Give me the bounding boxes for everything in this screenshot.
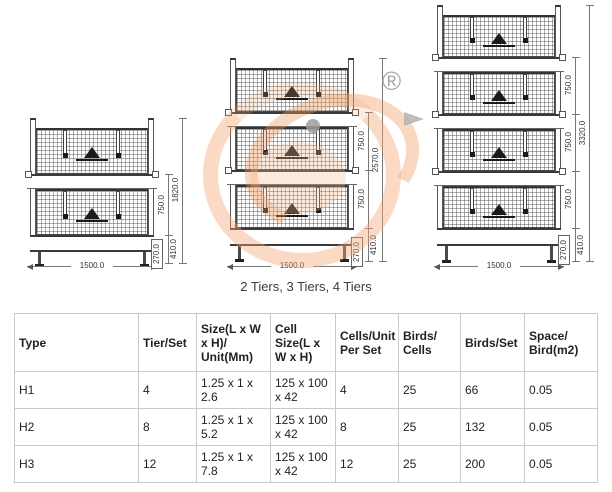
spec-cell: 12 <box>336 446 399 483</box>
spec-cell: 8 <box>139 409 197 446</box>
drinker-icon <box>84 208 100 219</box>
spec-cell: 125 x 100 x 42 <box>271 409 336 446</box>
cage-tier-mesh <box>443 72 555 114</box>
drinker-base <box>483 216 515 218</box>
spec-header-tier-set: Tier/Set <box>139 314 197 372</box>
tier-height-label: 750.0 <box>564 65 574 105</box>
total-height-label: 1820.0 <box>171 170 181 210</box>
foot-height-label: 270.0 <box>558 235 570 265</box>
spec-cell: 25 <box>399 372 461 409</box>
drinker-icon <box>491 147 507 158</box>
feeder-hanger-icon <box>523 131 527 153</box>
drinker-icon <box>284 145 300 156</box>
drinker-base <box>276 215 308 217</box>
table-row: H2 8 1.25 x 1 x 5.2 125 x 100 x 42 8 25 … <box>15 409 598 446</box>
feeder-hanger-icon <box>63 191 67 215</box>
spec-cell: 125 x 100 x 42 <box>271 372 336 409</box>
spec-cell: 8 <box>336 409 399 446</box>
drawings-caption: 2 Tiers, 3 Tiers, 4 Tiers <box>0 279 612 294</box>
manure-tray <box>434 114 564 129</box>
drinker-icon <box>491 33 507 44</box>
width-dimension-label: 1500.0 <box>71 261 113 271</box>
spec-cell: 1.25 x 1 x 5.2 <box>197 409 271 446</box>
feeder-hanger-icon <box>470 188 474 210</box>
spec-cell: 0.05 <box>525 372 598 409</box>
cage-tier-mesh <box>443 186 555 228</box>
drinker-base <box>276 157 308 159</box>
feeder-hanger-icon <box>263 70 267 93</box>
cage-leg <box>238 246 241 259</box>
spec-cell: 125 x 100 x 42 <box>271 446 336 483</box>
spec-header-cell-size: Cell Size(L x W x H) <box>271 314 336 372</box>
drinker-icon <box>491 204 507 215</box>
drinker-base <box>483 102 515 104</box>
spec-cell: 25 <box>399 446 461 483</box>
total-dimension-line <box>589 5 590 262</box>
base-height-label: 410.0 <box>576 225 586 265</box>
feeder-hanger-icon <box>263 187 267 209</box>
tier-height-label: 750.0 <box>564 179 574 219</box>
three-tier-cage-drawing: 1500.0 750.0 750.0 410.0 270.0 2570.0 <box>230 58 390 270</box>
feeder-hanger-icon <box>116 130 120 154</box>
drinker-icon <box>284 203 300 214</box>
total-height-label: 2570.0 <box>371 140 381 180</box>
feeder-hanger-icon <box>523 17 527 39</box>
feeder-hanger-icon <box>116 191 120 215</box>
base-frame <box>30 235 154 252</box>
manure-tray <box>227 112 357 127</box>
table-row: H3 12 1.25 x 1 x 7.8 125 x 100 x 42 12 2… <box>15 446 598 483</box>
drinker-base <box>276 98 308 100</box>
cage-tier-mesh <box>36 128 148 174</box>
feeder-hanger-icon <box>470 74 474 96</box>
spec-table: Type Tier/Set Size(L x W x H)/ Unit(Mm) … <box>14 313 598 483</box>
manure-tray <box>434 57 564 72</box>
four-tier-cage-drawing: 1500.0 750.0 750.0 750.0 410.0 270.0 332… <box>437 5 612 270</box>
tier-height-label: 750.0 <box>357 179 367 219</box>
spec-header-cells-unit: Cells/Unit Per Set <box>336 314 399 372</box>
tier-height-label: 750.0 <box>564 122 574 162</box>
cage-tier-mesh <box>236 68 348 112</box>
brand-watermark-tail-icon <box>404 112 424 126</box>
spec-cell: 66 <box>461 372 525 409</box>
width-dimension-line: 1500.0 <box>27 266 157 267</box>
drinker-base <box>483 45 515 47</box>
cage-post-right <box>348 58 354 246</box>
spec-header-birds-cells: Birds/ Cells <box>399 314 461 372</box>
foot-height-label: 270.0 <box>151 239 163 269</box>
base-frame <box>230 228 354 246</box>
width-dimension-label: 1500.0 <box>478 261 520 271</box>
feeder-hanger-icon <box>316 187 320 209</box>
spec-cell: 25 <box>399 409 461 446</box>
page: 1500.0 750.0 410.0 270.0 1820.0 <box>0 0 612 492</box>
total-dimension-line <box>382 58 383 262</box>
spec-cell: 1.25 x 1 x 2.6 <box>197 372 271 409</box>
spec-header-type: Type <box>15 314 139 372</box>
width-dimension-line: 1500.0 <box>434 266 564 267</box>
cage-leg <box>38 252 41 264</box>
tier-height-label: 750.0 <box>357 121 367 161</box>
spec-cell: 1.25 x 1 x 7.8 <box>197 446 271 483</box>
spec-cell: 0.05 <box>525 409 598 446</box>
feeder-hanger-icon <box>63 130 67 154</box>
cage-tier-mesh <box>443 129 555 171</box>
base-frame <box>437 228 561 246</box>
drinker-icon <box>84 147 100 158</box>
feeder-hanger-icon <box>523 188 527 210</box>
spec-cell: 132 <box>461 409 525 446</box>
drinker-base <box>76 220 108 222</box>
spec-header-space-bird: Space/ Bird(m2) <box>525 314 598 372</box>
drinker-base <box>76 159 108 161</box>
cage-leg <box>445 246 448 260</box>
spec-cell: 200 <box>461 446 525 483</box>
two-tier-cage-drawing: 1500.0 750.0 410.0 270.0 1820.0 <box>30 118 190 270</box>
base-height-label: 410.0 <box>369 225 379 265</box>
spec-cell: 4 <box>336 372 399 409</box>
manure-tray <box>434 171 564 186</box>
spec-header-birds-set: Birds/Set <box>461 314 525 372</box>
drinker-icon <box>491 90 507 101</box>
spec-cell: 4 <box>139 372 197 409</box>
total-height-label: 3320.0 <box>578 113 588 153</box>
feeder-hanger-icon <box>263 129 267 151</box>
cage-leg <box>343 246 346 259</box>
total-dimension-line <box>182 118 183 264</box>
cage-tier-mesh <box>236 127 348 170</box>
feeder-hanger-icon <box>470 131 474 153</box>
feeder-hanger-icon <box>316 129 320 151</box>
cage-leg <box>550 246 553 260</box>
width-dimension-label: 1500.0 <box>271 261 313 271</box>
spec-header-size-unit: Size(L x W x H)/ Unit(Mm) <box>197 314 271 372</box>
feeder-hanger-icon <box>316 70 320 93</box>
spec-cell: 0.05 <box>525 446 598 483</box>
cage-tier-mesh <box>236 185 348 228</box>
spec-cell: 12 <box>139 446 197 483</box>
cage-leg <box>143 252 146 264</box>
table-row: H1 4 1.25 x 1 x 2.6 125 x 100 x 42 4 25 … <box>15 372 598 409</box>
drinker-base <box>483 159 515 161</box>
cage-tier-mesh <box>36 189 148 235</box>
foot-height-label: 270.0 <box>351 237 363 267</box>
drinker-icon <box>284 86 300 97</box>
tier-height-label: 750.0 <box>157 185 167 225</box>
base-height-label: 410.0 <box>169 229 179 269</box>
feeder-hanger-icon <box>523 74 527 96</box>
spec-cell: H2 <box>15 409 139 446</box>
spec-cell: H1 <box>15 372 139 409</box>
width-dimension-line: 1500.0 <box>227 266 357 267</box>
manure-tray <box>227 170 357 185</box>
spec-cell: H3 <box>15 446 139 483</box>
spec-header-row: Type Tier/Set Size(L x W x H)/ Unit(Mm) … <box>15 314 598 372</box>
cage-tier-mesh <box>443 15 555 57</box>
feeder-hanger-icon <box>470 17 474 39</box>
manure-tray <box>27 174 157 189</box>
